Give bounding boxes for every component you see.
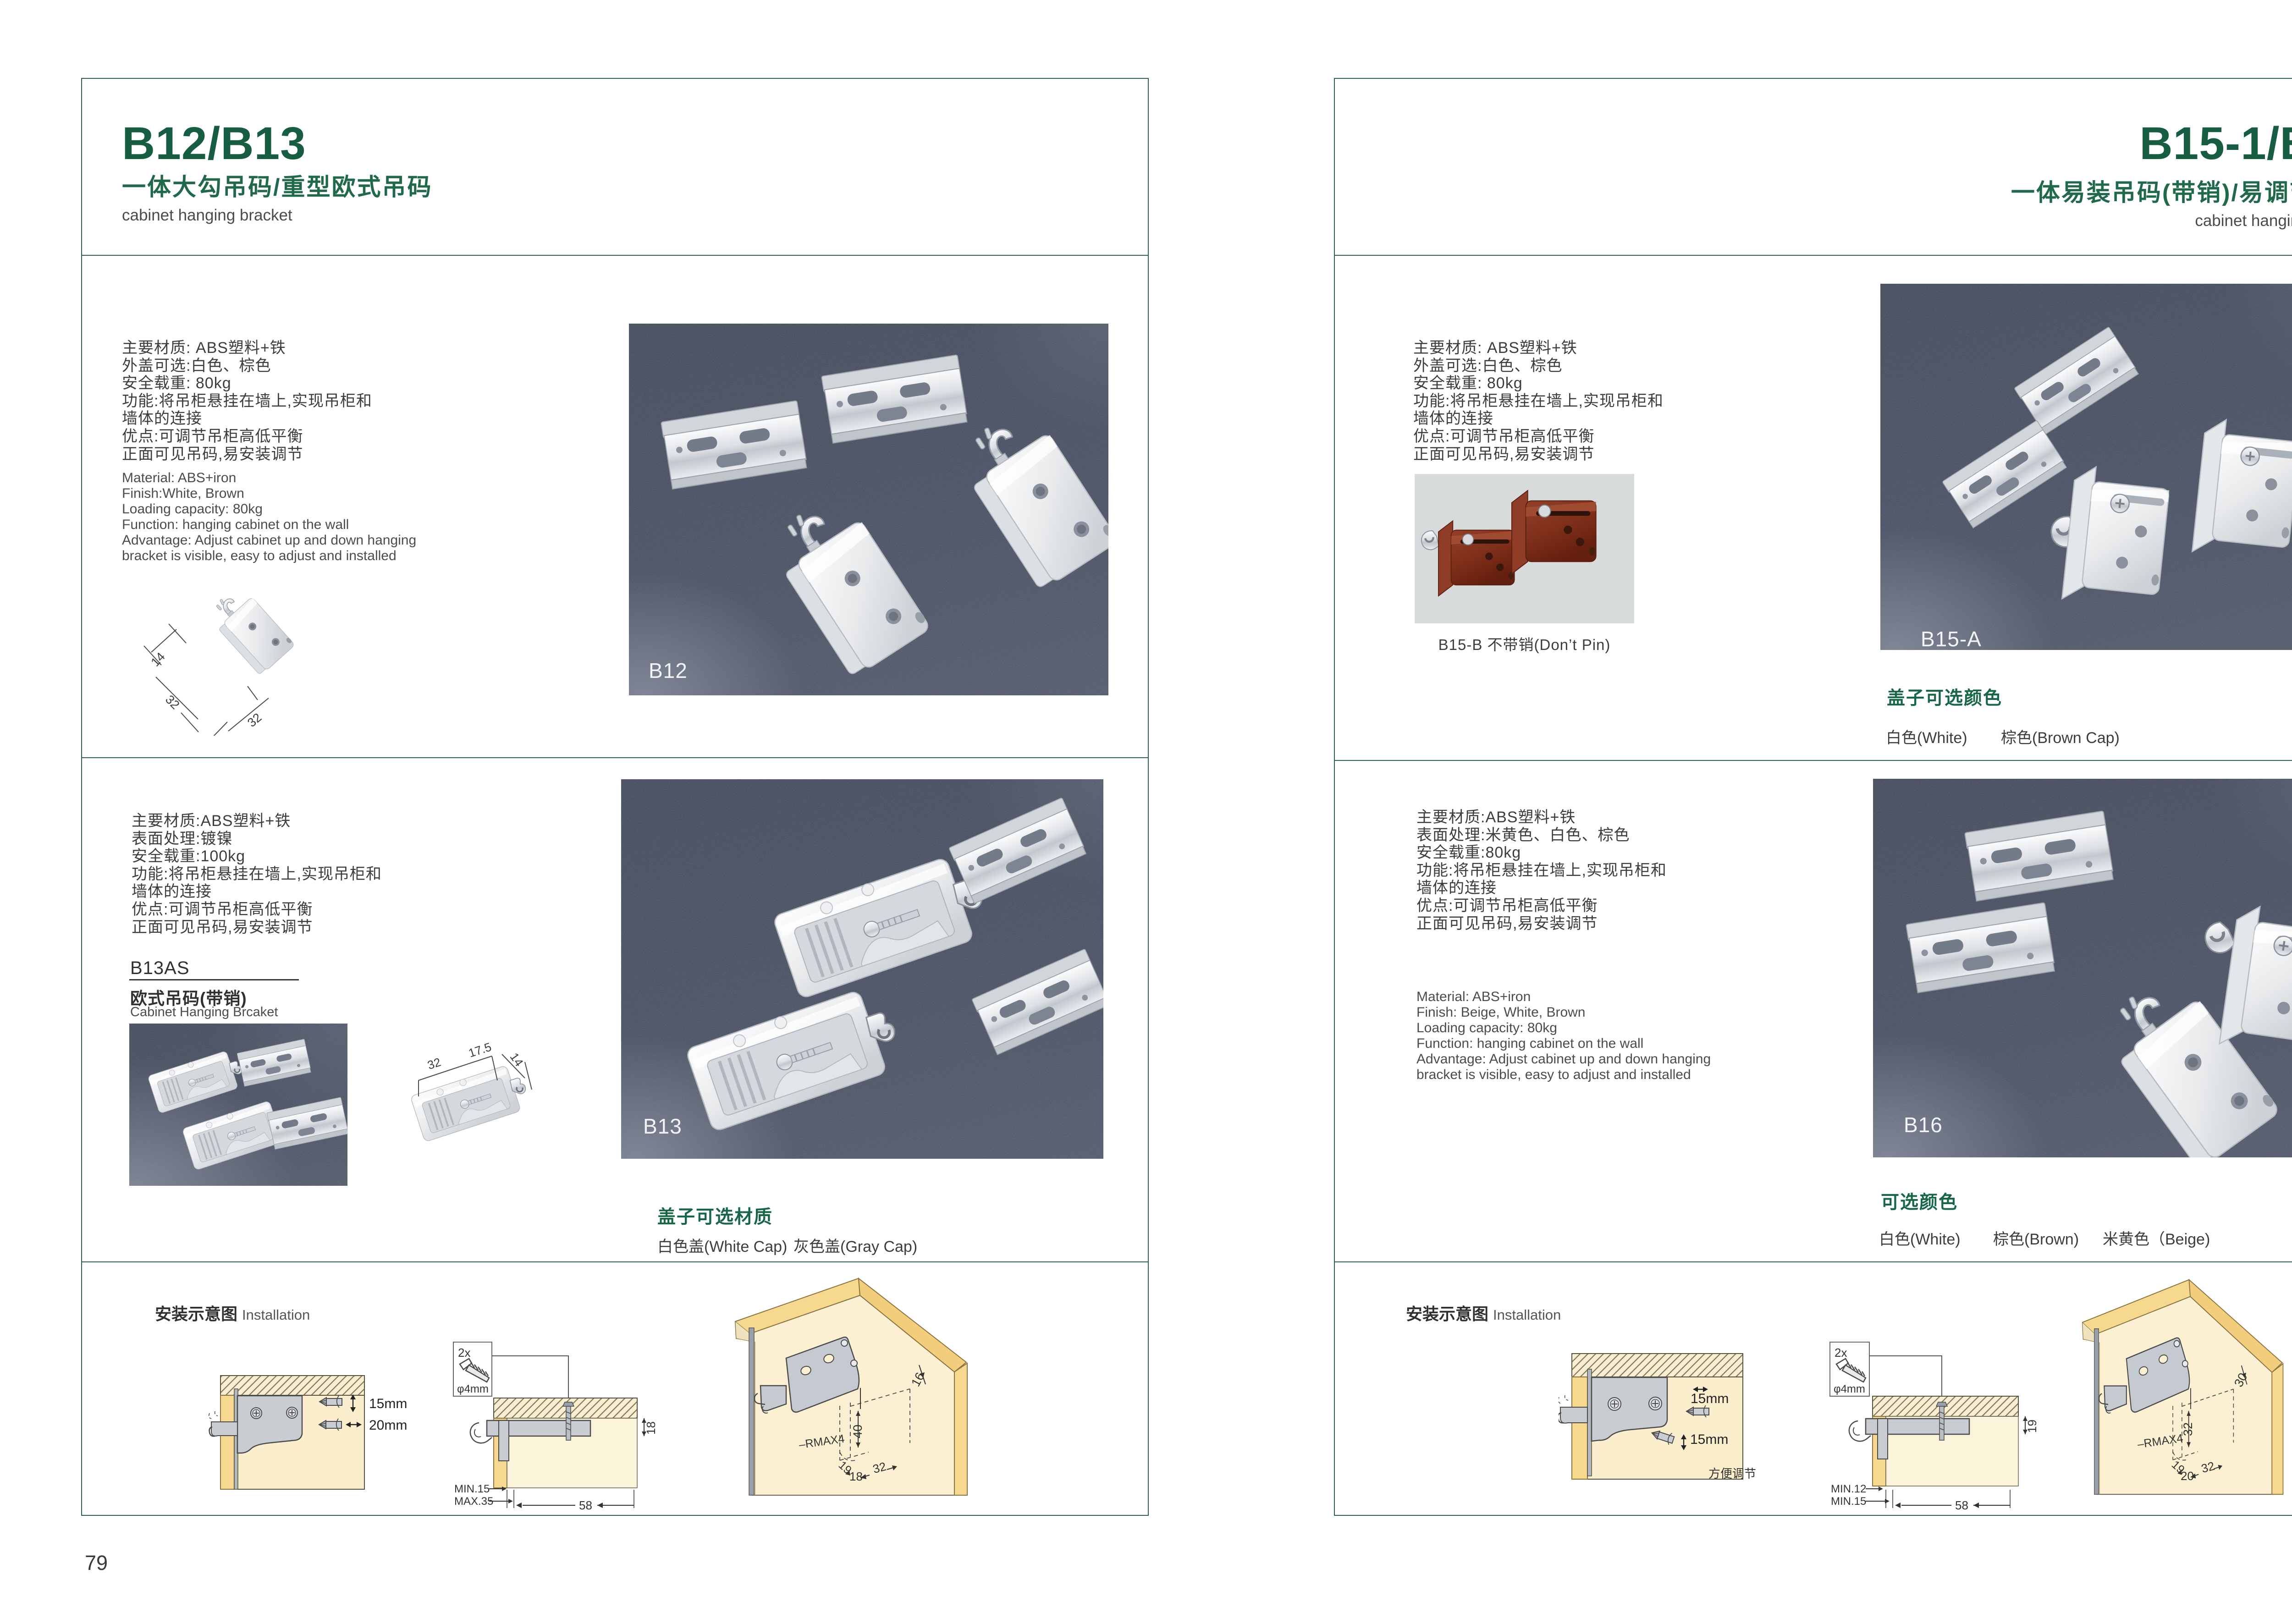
svg-text:方便调节: 方便调节 [1708,1467,1756,1481]
svg-text:32: 32 [245,710,264,730]
svg-text:2x: 2x [1835,1346,1847,1360]
svg-text:32: 32 [426,1055,443,1072]
svg-text:18: 18 [849,1470,863,1483]
svg-text:32: 32 [2181,1422,2195,1436]
svg-text:14: 14 [148,650,167,669]
svg-text:19: 19 [2025,1420,2039,1433]
svg-text:MIN.15: MIN.15 [1831,1495,1866,1508]
svg-text:58: 58 [579,1498,592,1512]
svg-text:MIN.15: MIN.15 [454,1483,490,1495]
svg-text:MAX.35: MAX.35 [454,1495,493,1508]
svg-text:18: 18 [644,1421,658,1435]
svg-text:20mm: 20mm [369,1418,407,1433]
svg-text:58: 58 [1955,1498,1968,1512]
svg-text:φ4mm: φ4mm [1834,1383,1865,1395]
svg-text:32: 32 [163,693,182,712]
svg-text:15mm: 15mm [1690,1432,1728,1447]
svg-text:φ4mm: φ4mm [457,1383,489,1395]
svg-text:14: 14 [507,1050,526,1069]
svg-text:15mm: 15mm [369,1396,407,1411]
svg-text:15mm: 15mm [1691,1391,1729,1406]
svg-text:40: 40 [851,1425,865,1438]
svg-text:MIN.12: MIN.12 [1831,1483,1866,1495]
svg-text:2x: 2x [458,1346,470,1360]
svg-text:20: 20 [2181,1469,2194,1483]
